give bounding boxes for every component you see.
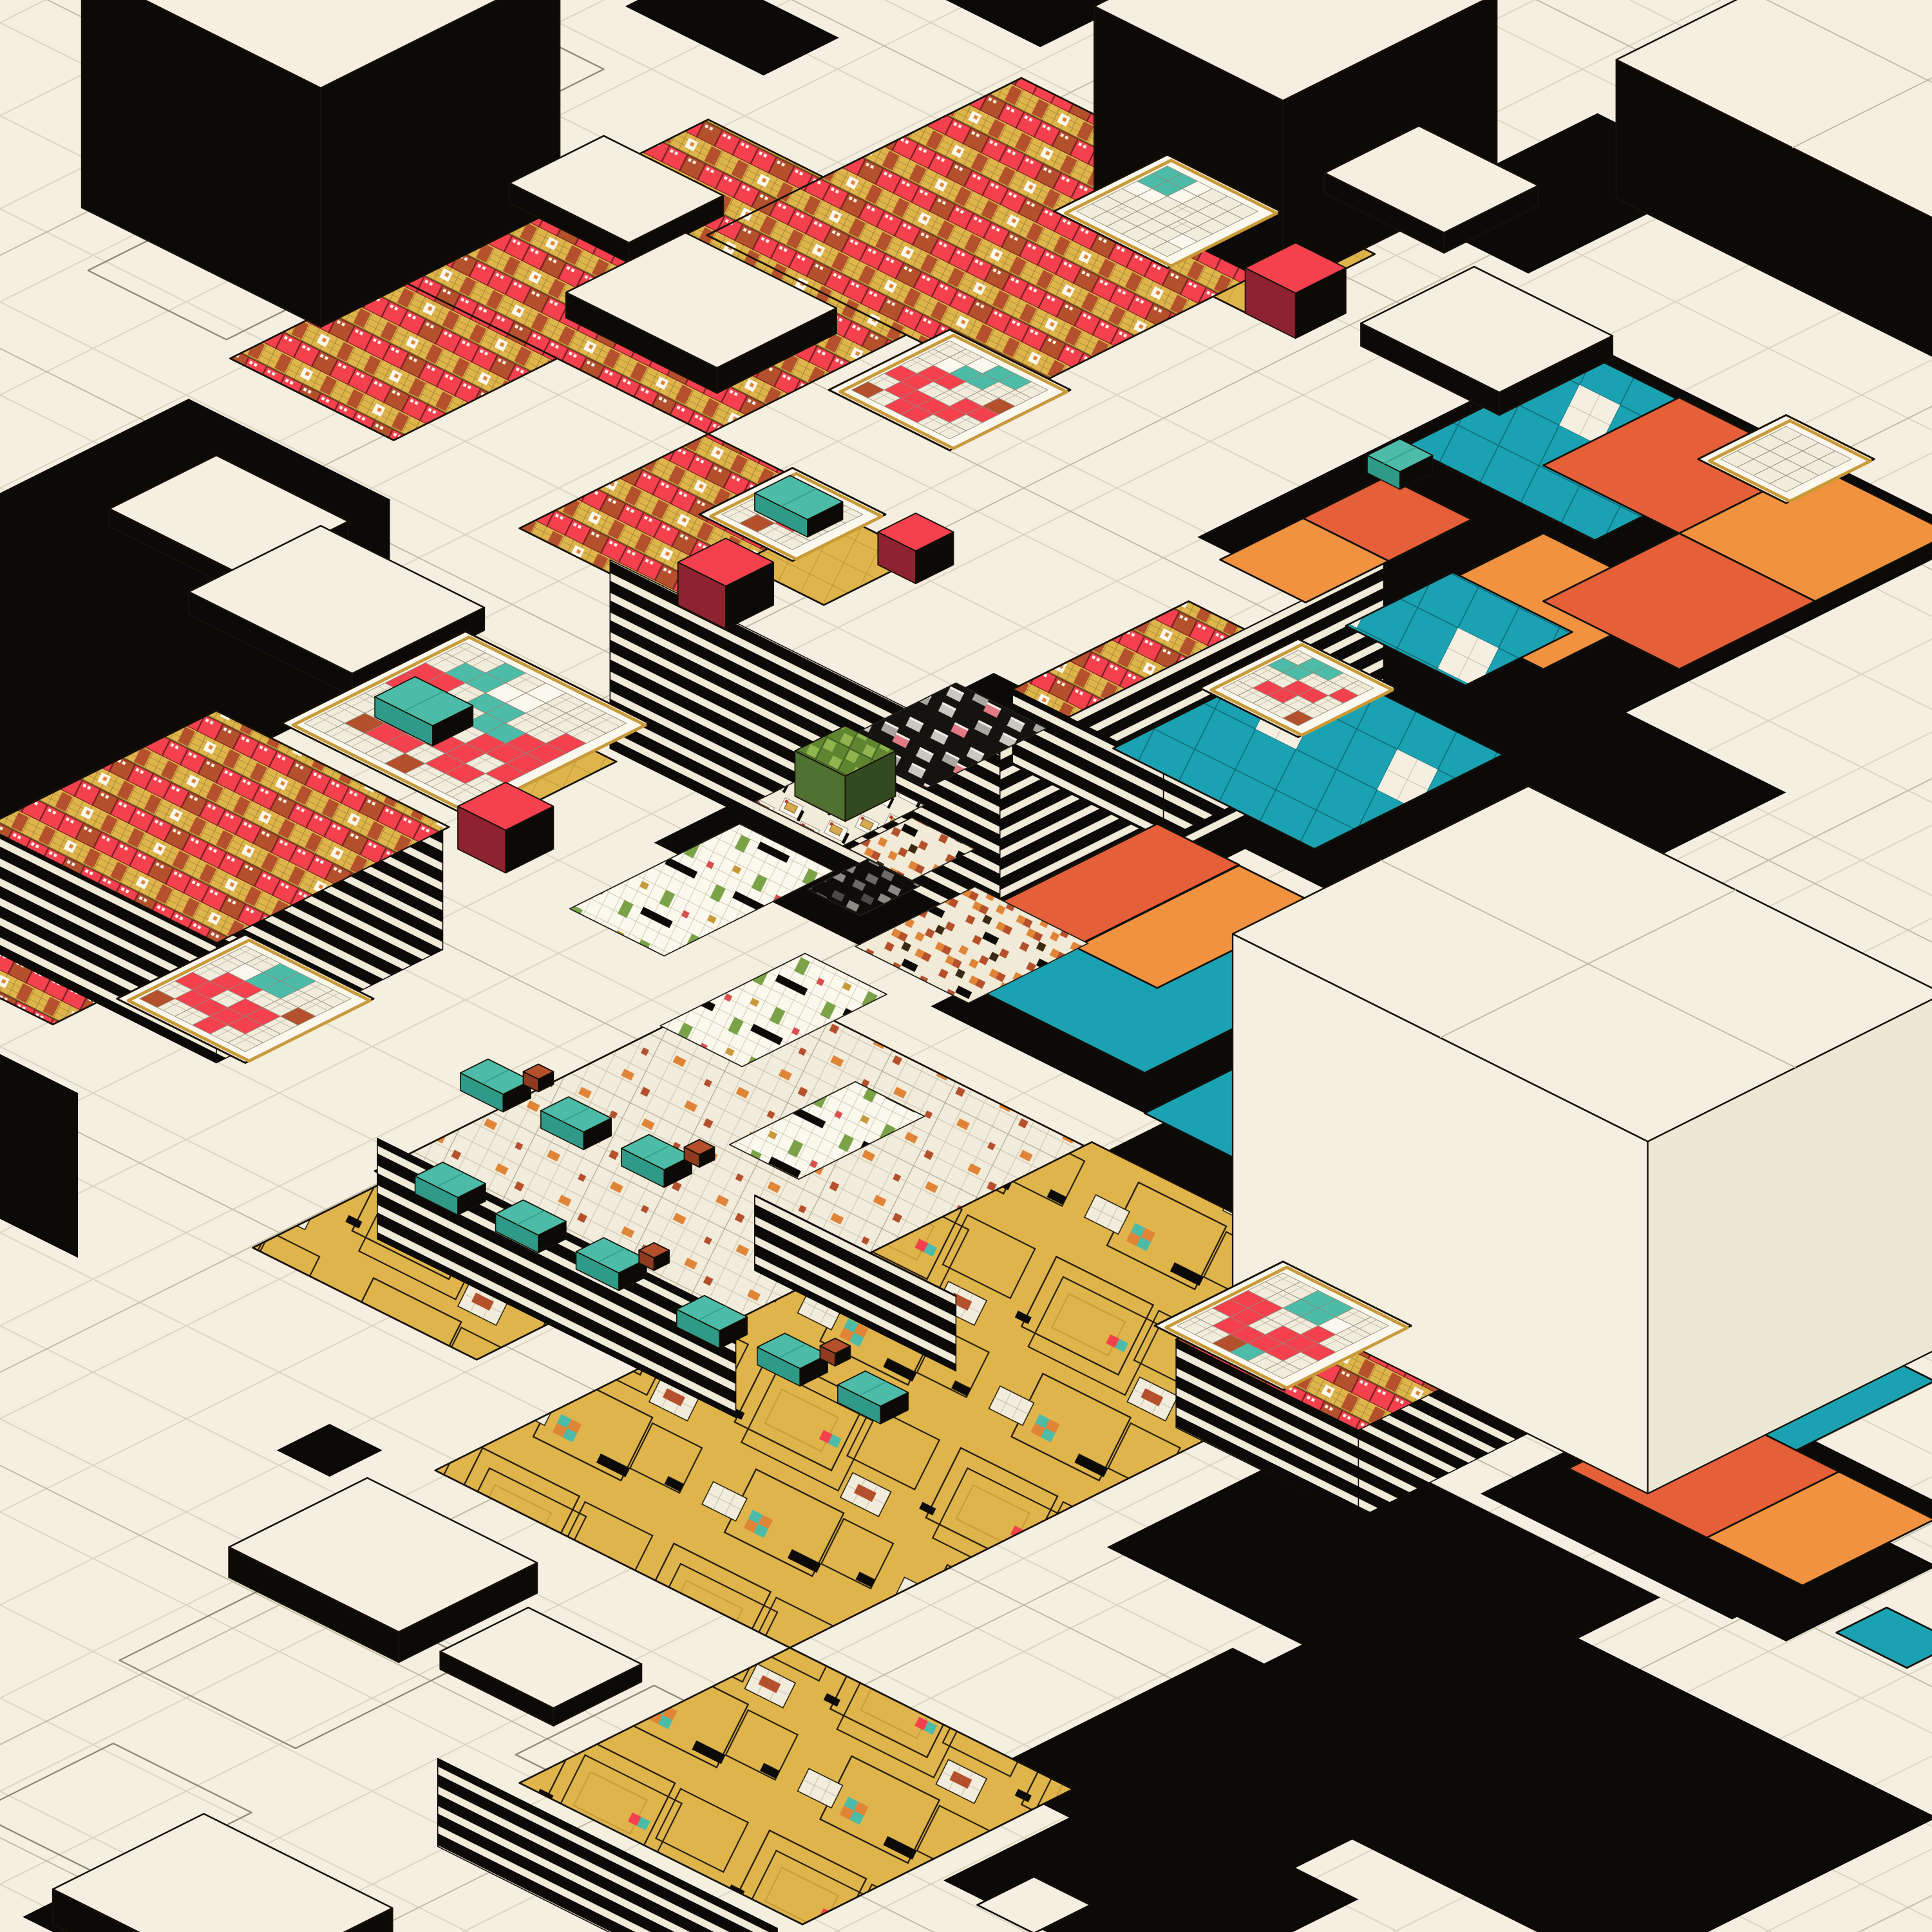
artwork-stage	[0, 0, 1932, 1932]
generative-iso-artwork	[0, 0, 1932, 1932]
